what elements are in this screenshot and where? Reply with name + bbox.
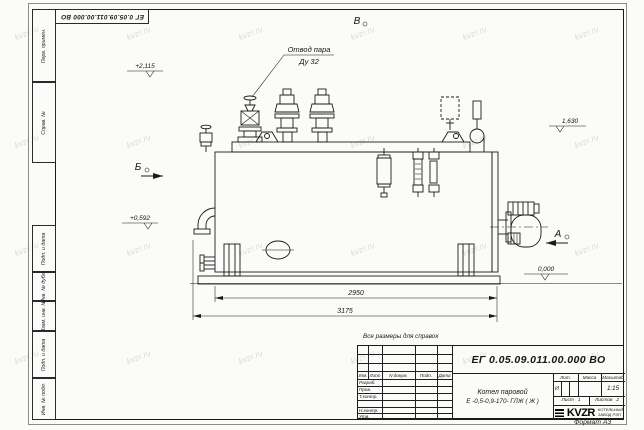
- dimension-lines: 2950 3175: [190, 240, 622, 322]
- view-v-label: В: [354, 16, 361, 27]
- tb-row-tkontr: Т.контр.: [358, 393, 382, 400]
- tb-scale-label: Масштаб: [601, 373, 625, 381]
- elevation-marks: +2,115 1,630 +0,592 0,000: [122, 63, 586, 280]
- elevation-left-label: +0,592: [130, 215, 150, 222]
- burner: [490, 202, 548, 247]
- tb-lit-value: И: [553, 381, 561, 396]
- title-block: Изм. Лист N докум. Подп. Дата Разраб. Пр…: [357, 345, 624, 419]
- view-arrows: В Б А: [135, 16, 569, 246]
- tb-col-ndocum: N докум.: [382, 371, 415, 379]
- tb-col-izm: Изм.: [358, 371, 368, 379]
- kvzr-logo-icon: [555, 408, 564, 417]
- tb-mass-label: Масса: [578, 373, 601, 381]
- kvzr-logo-text: KVZR: [567, 407, 595, 419]
- tb-col-list: Лист: [368, 371, 382, 379]
- tb-col-data: Дата: [437, 371, 452, 379]
- steam-outlet-text-1: Отвод пара: [288, 45, 331, 54]
- sheets-label: Листов: [595, 398, 612, 403]
- safety-valve-1: [275, 89, 299, 142]
- company-subtitle: КОТЕЛЬНЫЙ ЗАВОД РЭП: [598, 408, 623, 417]
- elevation-ground-label: 0,000: [538, 266, 555, 273]
- tb-doc-number: ЕГ 0.05.09.011.00.000 ВО: [452, 346, 625, 373]
- product-name-line2: Е -0,5-0,9-170- ГЛЖ ( Ж ): [466, 398, 539, 405]
- tb-row-utv: Утв.: [358, 413, 382, 420]
- tb-row-prov: Пров.: [358, 386, 382, 393]
- sheet-value: 1: [578, 398, 581, 403]
- dim-2950: 2950: [347, 290, 364, 297]
- top-fittings: [441, 97, 484, 152]
- view-b-label: Б: [135, 162, 142, 173]
- tb-lit-label: Лит.: [553, 373, 578, 381]
- left-fittings: [194, 125, 215, 271]
- format-label: Формат А3: [574, 419, 611, 426]
- tb-sheets: Листов 2: [589, 396, 625, 405]
- drawing-sheet: kvzr.rukvzr.rukvzr.rukvzr.rukvzr.rukvzr.…: [0, 0, 644, 430]
- tb-sheet: Лист 1: [553, 396, 589, 405]
- safety-valve-2: [310, 89, 334, 142]
- elevation-right-label: 1,630: [562, 118, 579, 125]
- steam-outlet-text-2: Ду 32: [298, 57, 319, 66]
- sheet-label: Лист: [561, 398, 573, 403]
- lifting-lugs: [256, 132, 464, 142]
- boiler-body: [198, 142, 500, 284]
- elevation-top-label: +2,115: [135, 63, 155, 70]
- tb-row-razrab: Разраб.: [358, 379, 382, 386]
- tb-scale-value: 1:15: [601, 381, 625, 396]
- tb-col-podp: Подп.: [415, 371, 437, 379]
- level-gauges: [377, 148, 439, 197]
- sheets-value: 2: [616, 398, 619, 403]
- tb-company-cell: KVZR КОТЕЛЬНЫЙ ЗАВОД РЭП: [553, 405, 625, 420]
- tb-product-name: Котел паровой Е -0,5-0,9-170- ГЛЖ ( Ж ): [452, 373, 553, 420]
- steam-outlet-valve: [238, 96, 262, 142]
- reference-note: Все размеры для справок: [363, 333, 438, 340]
- dim-3175: 3175: [337, 308, 353, 315]
- view-a-label: А: [554, 229, 562, 240]
- product-name-line1: Котел паровой: [477, 389, 527, 396]
